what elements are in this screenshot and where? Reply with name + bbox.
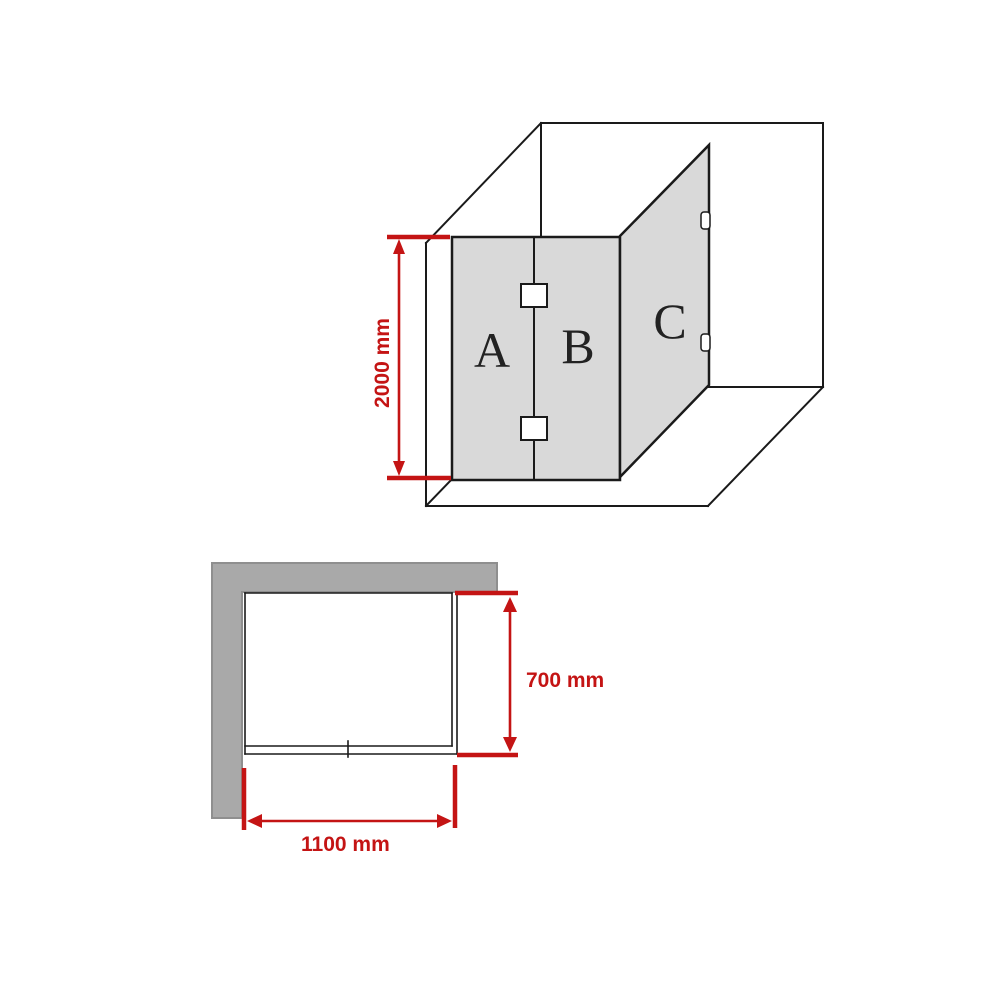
iso-view: A B C 2000 mm — [371, 123, 823, 506]
hinge-bottom-icon — [521, 417, 547, 440]
floor-right-edge — [708, 387, 823, 506]
depth-dimension: 700 mm — [455, 593, 604, 755]
depth-dim-arrow-up-icon — [503, 597, 517, 612]
width-dim-arrow-left-icon — [247, 814, 262, 828]
diagram-canvas: A B C 2000 mm — [0, 0, 1000, 1000]
depth-dim-label: 700 mm — [526, 669, 604, 692]
width-dimension: 1100 mm — [244, 765, 455, 856]
height-dim-arrow-up-icon — [393, 239, 405, 254]
depth-dim-arrow-down-icon — [503, 737, 517, 752]
left-wall-top-edge — [426, 123, 541, 243]
wall-bracket-bottom-icon — [701, 334, 710, 351]
hinge-top-icon — [521, 284, 547, 307]
height-dimension: 2000 mm — [371, 237, 451, 478]
width-dim-label: 1100 mm — [301, 833, 390, 856]
width-dim-arrow-right-icon — [437, 814, 452, 828]
panel-b-label: B — [561, 318, 594, 374]
height-dim-label: 2000 mm — [371, 318, 394, 408]
panel-c-label: C — [653, 293, 686, 349]
wall-bracket-top-icon — [701, 212, 710, 229]
panel-a-label: A — [474, 322, 510, 378]
plan-outline — [245, 593, 457, 757]
height-dim-arrow-down-icon — [393, 461, 405, 476]
shower-screen-diagram: A B C 2000 mm — [0, 0, 1000, 1000]
plan-view: 700 mm 1100 mm — [212, 563, 604, 856]
